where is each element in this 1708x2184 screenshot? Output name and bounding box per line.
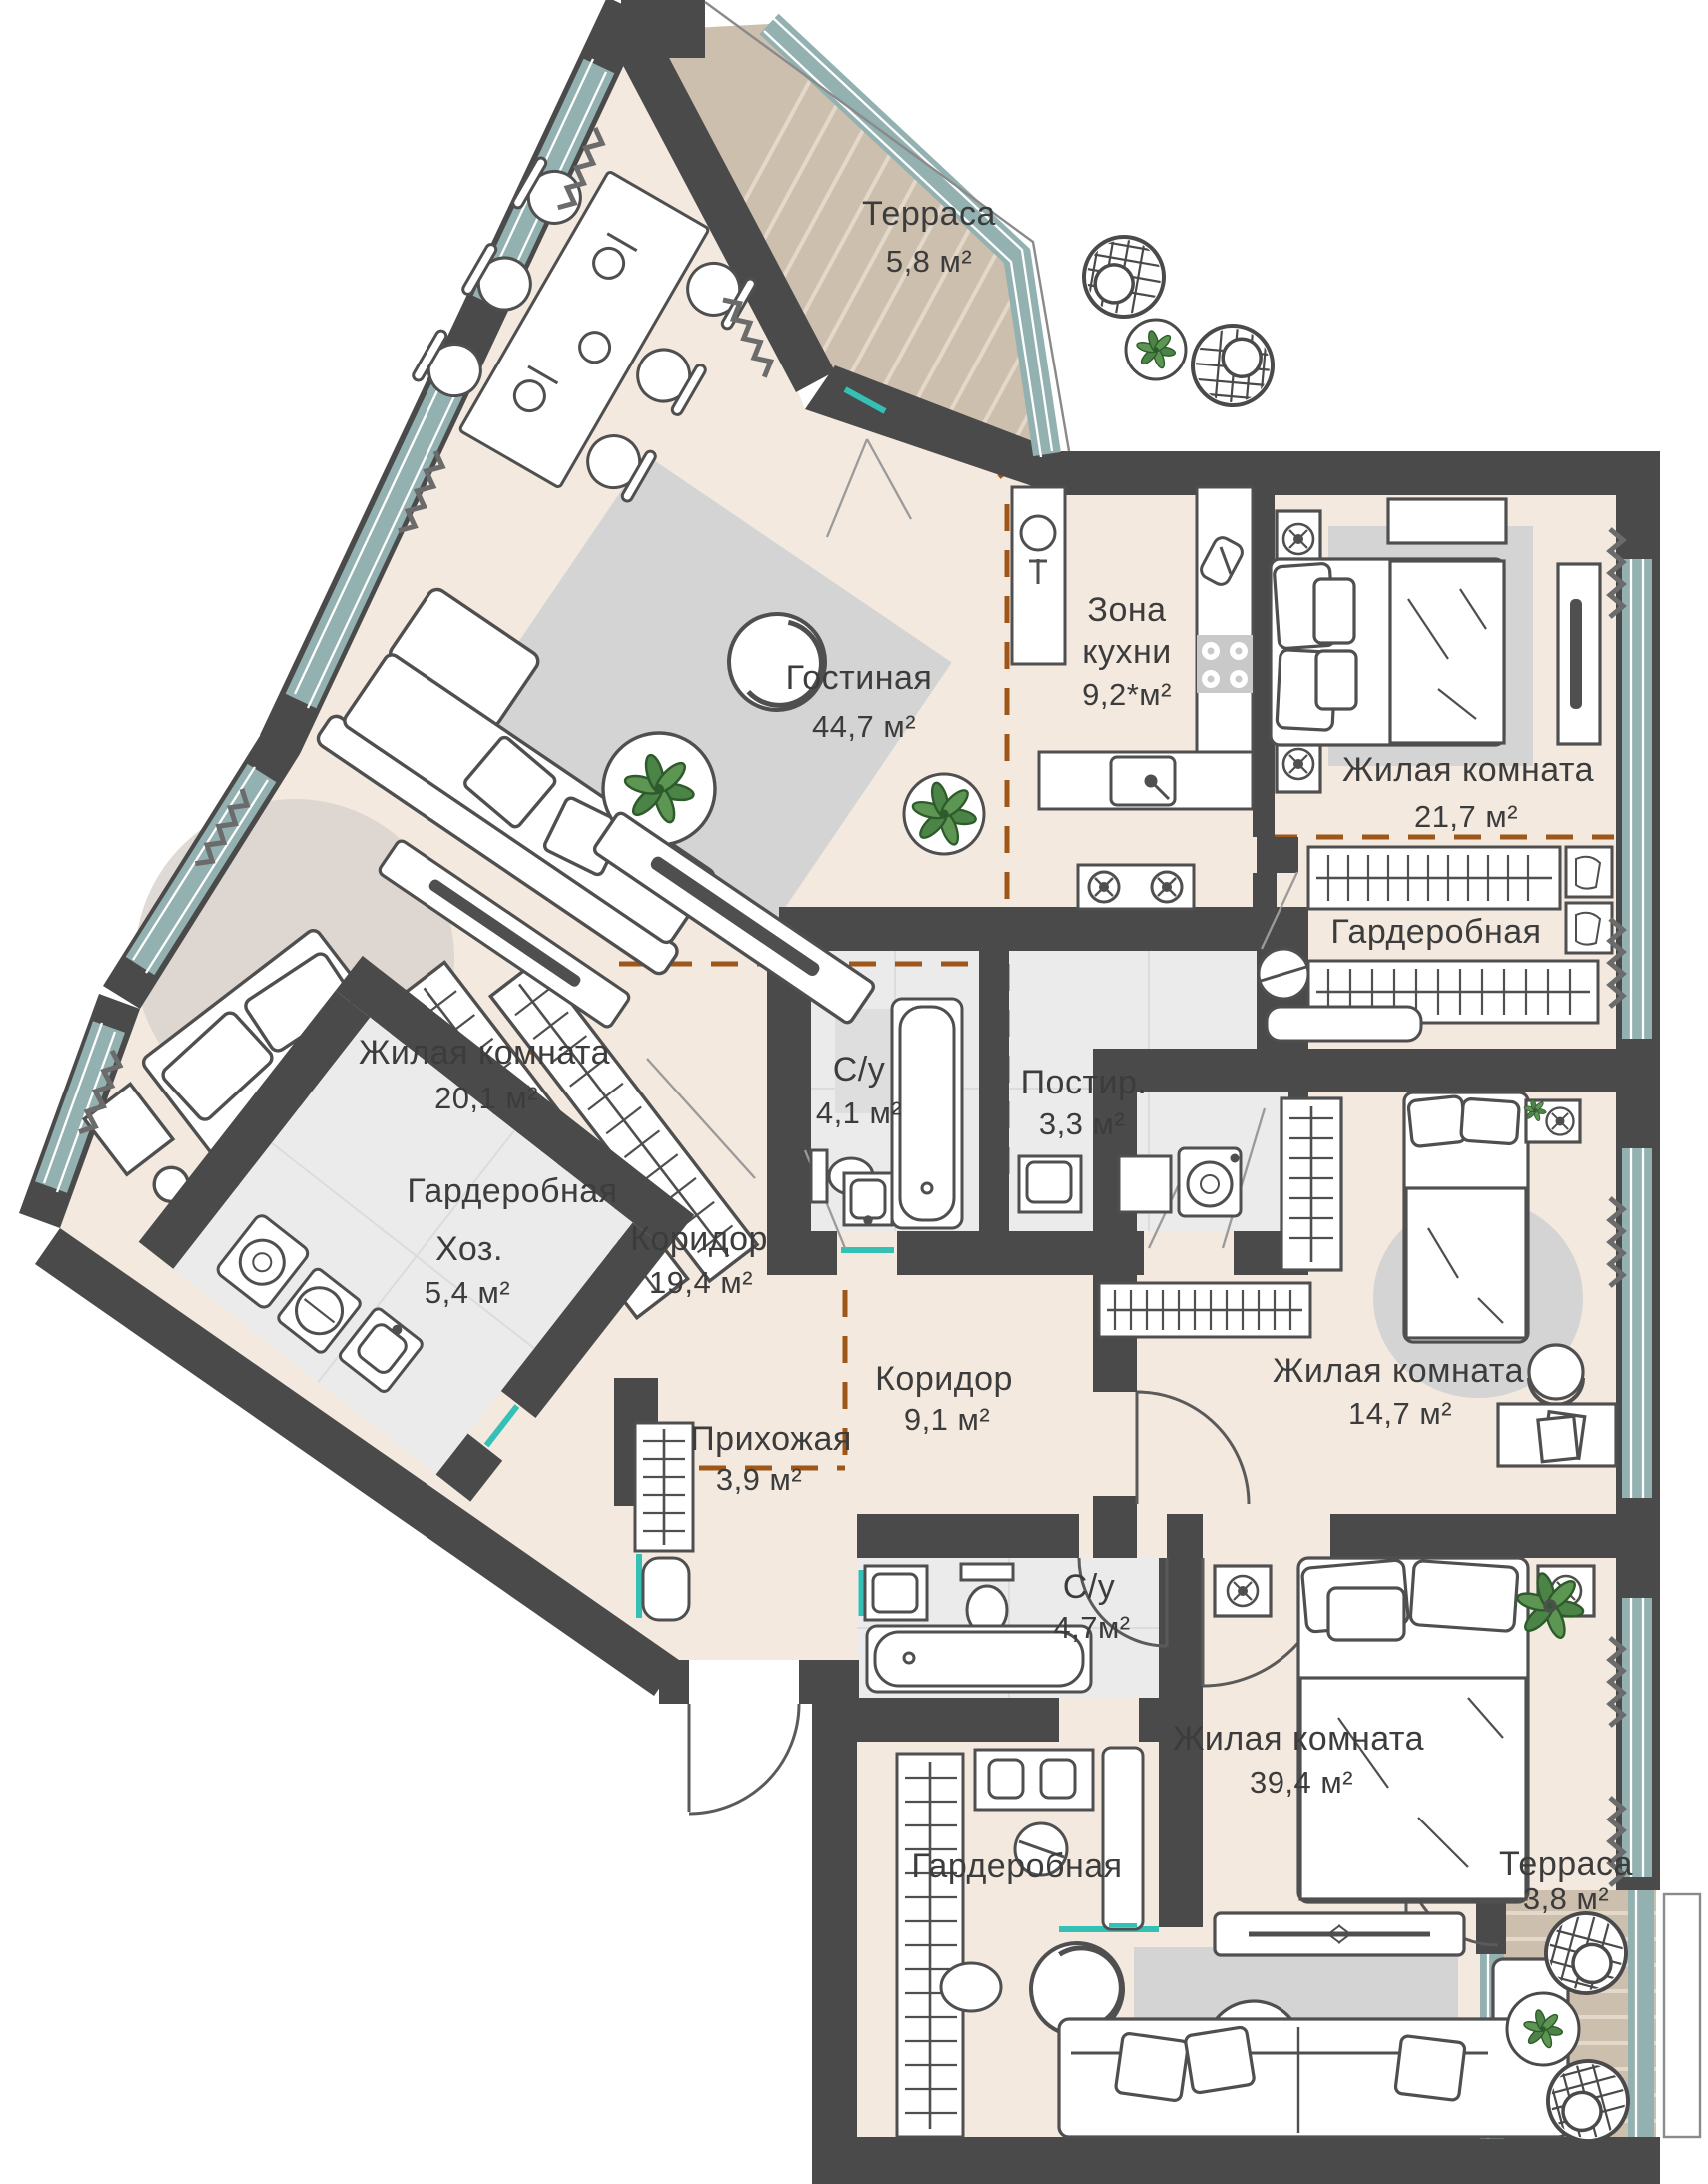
label-bath-small-area: 4,1 м² [816, 1095, 902, 1130]
label-bedroom14-name: Жилая комната [1273, 1352, 1524, 1390]
bed-single [1404, 1092, 1528, 1342]
label-utility-name: Хоз. [435, 1230, 503, 1268]
bed-double [1271, 559, 1504, 745]
label-bedroom39-area: 39,4 м² [1250, 1765, 1353, 1800]
toilet [811, 1150, 827, 1202]
balcony-outline-bottom [1664, 1894, 1700, 2137]
label-laundry-area: 3,3 м² [1039, 1106, 1125, 1141]
label-hallway-name: Прихожая [690, 1420, 852, 1458]
label-bath-large-name: С/у [1063, 1568, 1116, 1606]
label-bath-small-name: С/у [833, 1051, 886, 1089]
laundry-counter [1119, 1156, 1171, 1212]
bench [1267, 1007, 1421, 1041]
hallway-furniture [635, 1423, 693, 1620]
label-bedroom14-area: 14,7 м² [1348, 1396, 1452, 1431]
label-hallway-area: 3,9 м² [716, 1462, 802, 1497]
label-bath-large-area: 4,7м² [1053, 1610, 1130, 1645]
label-bedroom20-name: Жилая комната [359, 1034, 610, 1072]
hallway-bench [643, 1558, 689, 1620]
corridor-coat-rack [1099, 1283, 1310, 1337]
shirt [1041, 1760, 1075, 1798]
label-living-name: Гостиная [786, 659, 933, 697]
label-bedroom21-area: 21,7 м² [1414, 799, 1518, 834]
tv-console [1215, 1913, 1464, 1955]
label-kitchen-name2: кухни [1082, 633, 1172, 671]
label-wardrobe-bottom: Гардеробная [911, 1847, 1122, 1885]
label-terrace-bottom-area: 3,8 м² [1523, 1881, 1609, 1916]
floor-plan-stage: Терраса 5,8 м² Гостиная 44,7 м² Зона кух… [0, 0, 1708, 2184]
shirt [989, 1760, 1023, 1798]
label-terrace-bottom-name: Терраса [1499, 1845, 1633, 1883]
desk-chair [1529, 1345, 1583, 1399]
tv-console-right [1558, 564, 1600, 744]
label-living-area: 44,7 м² [812, 709, 916, 744]
pouf [941, 1963, 1001, 2011]
floor-plant-living [904, 774, 984, 854]
label-corridor-small-name: Коридор [875, 1360, 1013, 1398]
label-bedroom39-name: Жилая комната [1173, 1720, 1424, 1758]
label-corridor-small-area: 9,1 м² [904, 1402, 990, 1437]
label-wardrobe-right: Гардеробная [1330, 913, 1541, 951]
label-bedroom20-area: 20,1 м² [434, 1081, 538, 1115]
label-kitchen-area: 9,2*м² [1082, 677, 1172, 712]
toilet [961, 1564, 1013, 1580]
label-terrace-top-name: Терраса [862, 195, 996, 233]
sliding-door [1103, 1748, 1143, 1929]
label-utility-area: 5,4 м² [425, 1275, 510, 1310]
label-bedroom21-name: Жилая комната [1342, 751, 1594, 789]
label-terrace-top-area: 5,8 м² [886, 244, 972, 279]
label-corridor-main-area: 19,4 м² [649, 1265, 753, 1300]
label-wardrobe-left: Гардеробная [407, 1172, 617, 1210]
label-kitchen-name1: Зона [1087, 591, 1166, 629]
label-corridor-main-name: Коридор [630, 1220, 768, 1258]
terrace-top-furniture [1063, 216, 1294, 427]
label-laundry-name: Постир. [1021, 1064, 1148, 1101]
floor-plan-svg: Терраса 5,8 м² Гостиная 44,7 м² Зона кух… [0, 0, 1708, 2184]
laundry-fixtures [1019, 1148, 1241, 1216]
console-top [1388, 499, 1506, 543]
